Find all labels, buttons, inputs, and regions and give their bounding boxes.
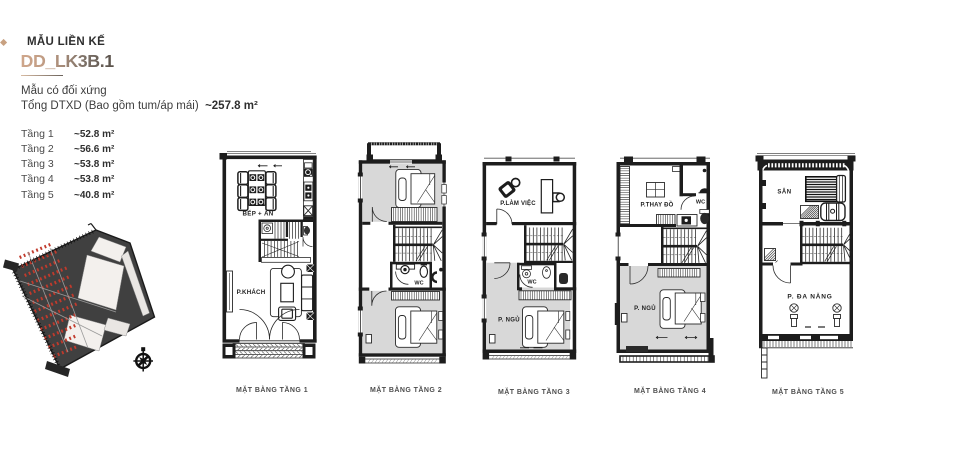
svg-text:P. ĐA NĂNG: P. ĐA NĂNG [787,292,832,301]
svg-text:WC: WC [527,280,536,286]
svg-text:SÂN: SÂN [777,189,791,196]
svg-text:WC: WC [696,200,705,206]
svg-text:P. NGỦ: P. NGỦ [498,317,520,324]
svg-text:BẾP + ĂN: BẾP + ĂN [243,210,274,217]
svg-text:P.KHÁCH: P.KHÁCH [237,289,266,296]
svg-text:P. NGỦ: P. NGỦ [634,305,656,312]
svg-text:P.LÀM VIỆC: P.LÀM VIỆC [500,199,536,207]
svg-text:P.THAY ĐỒ: P.THAY ĐỒ [640,202,673,209]
svg-text:WC: WC [414,281,423,287]
